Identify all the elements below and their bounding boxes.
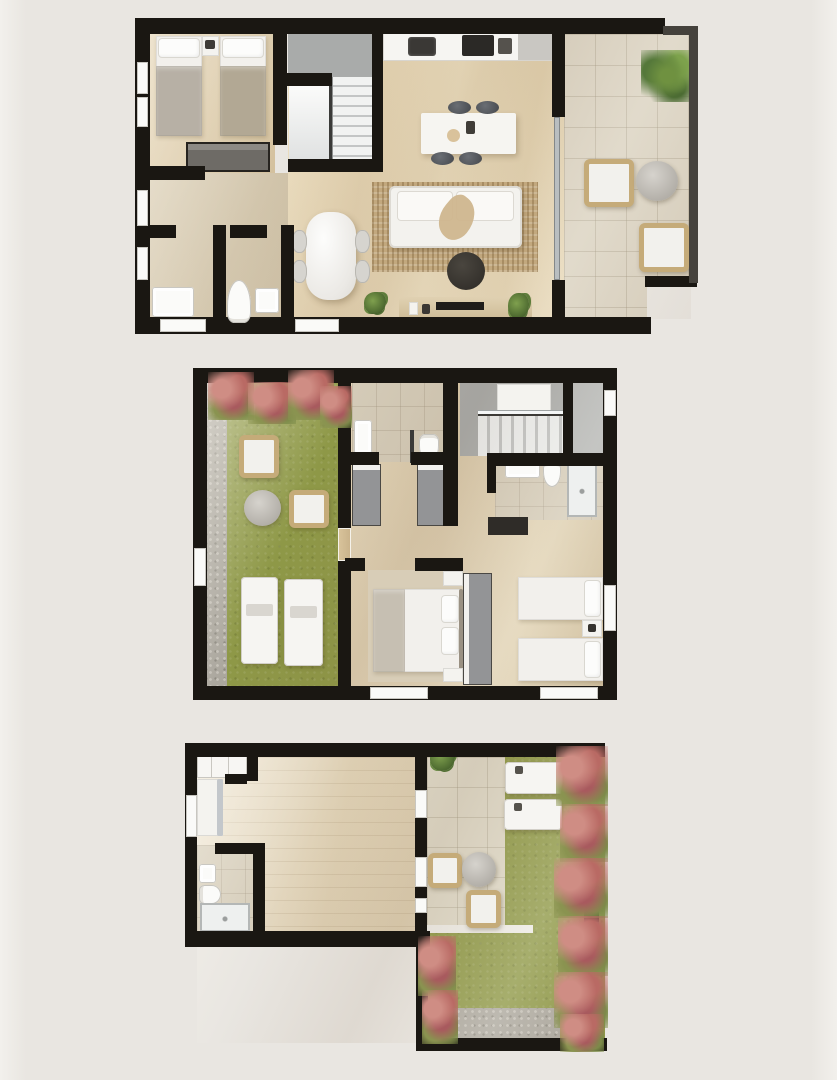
- f2-wall-bath1-right: [443, 368, 458, 526]
- f2-stair-side: [460, 416, 478, 456]
- f1-stair-flight-right: [332, 77, 372, 161]
- f1-bed-2-pillow: [222, 38, 264, 58]
- f2-master-pillow-1: [441, 595, 459, 623]
- f2-master-bench: [443, 668, 463, 682]
- f1-nightstand-decor: [205, 40, 215, 49]
- f3-shrub-4: [558, 916, 608, 976]
- f1-terrace-side-table: [636, 161, 678, 201]
- f2-master-blanket: [373, 589, 405, 672]
- f2-stair-glass-rail: [478, 410, 563, 416]
- f1-window-bottom-1: [160, 319, 206, 332]
- f1-wall-top: [135, 18, 665, 34]
- f2-bath1-sink: [354, 420, 372, 454]
- f3-wall-bath-stub: [215, 843, 253, 854]
- f2-bedroom2-dresser: [488, 517, 528, 535]
- f1-wall-bedroom-stub: [149, 166, 205, 180]
- f2-master-nightstand: [443, 571, 463, 586]
- f1-bed-1-blanket: [156, 66, 202, 136]
- f3-wall-left: [185, 743, 197, 947]
- f1-toilet: [227, 280, 251, 323]
- f3-sun-lounger-2: [504, 799, 562, 830]
- f1-terrace-wall-upper: [552, 33, 565, 117]
- f1-sliding-glass-door: [554, 117, 560, 280]
- f3-bath-sink: [199, 864, 216, 883]
- f2-bed2-pillow-1: [584, 580, 601, 617]
- f2-bed2-nightstand-decor: [588, 624, 596, 632]
- f1-wall-bath-2: [281, 225, 294, 319]
- f2-lounger-towel-1: [246, 604, 273, 616]
- f3-wall-sep-2: [415, 818, 427, 857]
- f1-stair-divider: [329, 86, 332, 161]
- f1-wall-stair-right: [372, 33, 383, 161]
- f1-coffee-table: [447, 252, 485, 290]
- f3-shrub-1: [556, 746, 608, 806]
- f3-lounger-detail-2: [514, 803, 522, 811]
- f1-dining-chair-4: [355, 260, 370, 283]
- f2-terrace-door: [338, 528, 351, 561]
- f1-kitchen-sink: [408, 37, 436, 56]
- f2-stair-shelf: [497, 384, 551, 411]
- f2-window-bottom-2: [540, 687, 598, 699]
- f3-door-2: [415, 857, 427, 887]
- f2-wall-hall-stub-2: [415, 558, 463, 571]
- f1-wall-stair-left: [280, 73, 332, 86]
- f2-window-left: [194, 548, 206, 586]
- f3-bath-toilet: [199, 885, 221, 904]
- f1-wall-bedroom: [273, 33, 287, 145]
- f1-wall-bottom: [135, 317, 651, 334]
- f3-door-3: [415, 898, 427, 913]
- f1-wall-bath-stub-2: [230, 225, 267, 238]
- f3-shower-bed-edge: [217, 779, 223, 836]
- f2-master-wardrobe: [463, 573, 492, 685]
- f2-lounger-towel-2: [290, 606, 317, 618]
- f3-wall-sep-1: [415, 755, 427, 790]
- f1-coffee-machine: [498, 38, 512, 54]
- f1-terrace-wall-lower: [552, 280, 565, 319]
- f2-bath2-shower: [567, 460, 597, 517]
- f1-bar-stool-3: [431, 152, 454, 165]
- f1-vanity: [152, 287, 194, 317]
- f2-window-right-2: [604, 585, 616, 631]
- f3-wall-sep-3: [415, 887, 427, 898]
- f3-shower-tray: [200, 903, 250, 932]
- f2-shrub-4: [320, 386, 352, 428]
- f3-wall-bath-right: [253, 843, 265, 933]
- f2-wall-terrace-lower: [338, 561, 351, 700]
- f1-dining-table: [306, 212, 356, 300]
- f3-wall-block-bottom: [185, 931, 430, 947]
- f2-stair-treads: [478, 416, 563, 456]
- f2-terrace-armchair-1: [239, 435, 279, 478]
- f1-wall-terrace-right: [689, 26, 698, 283]
- f2-master-pillow-2: [441, 627, 459, 655]
- f1-dining-chair-2: [292, 260, 307, 283]
- f2-wall-top: [193, 368, 617, 383]
- f1-console-decor-white: [409, 302, 418, 315]
- f2-wardrobe-2: [417, 464, 446, 526]
- f3-wall-below-closet: [225, 774, 247, 784]
- f1-tv: [436, 302, 484, 310]
- f2-window-bottom-1: [370, 687, 428, 699]
- f3-shrub-2: [560, 804, 608, 862]
- f2-bed2-pillow-2: [584, 641, 601, 678]
- f1-terrace-floor-lower: [564, 276, 647, 319]
- f2-wall-stairs-bottom: [487, 453, 603, 466]
- f2-sun-lounger-2: [284, 579, 323, 666]
- f1-bed-1-pillow: [158, 38, 200, 58]
- f1-bed-2-blanket: [220, 66, 266, 136]
- f1-island-bottle: [466, 121, 475, 134]
- f1-window-left-2: [137, 97, 148, 127]
- f2-wall-bath1-stub-r: [411, 452, 443, 465]
- f1-window-left-4: [137, 247, 148, 280]
- f2-terrace-table: [244, 490, 281, 526]
- f1-bar-stool-1: [448, 101, 471, 114]
- f1-bar-stool-4: [459, 152, 482, 165]
- f1-console-decor-dark: [422, 304, 430, 314]
- f1-cooktop: [462, 35, 494, 56]
- f3-shrub-6: [560, 1014, 604, 1052]
- f1-dining-chair-3: [355, 230, 370, 253]
- f1-wc-sink: [255, 288, 279, 313]
- f1-terrace-palm-plant: [641, 50, 693, 102]
- f1-terrace-armchair-2: [639, 223, 689, 272]
- f3-wall-sep-4: [415, 913, 427, 933]
- f1-terrace-armchair-1: [584, 159, 634, 207]
- f1-stair-landing: [288, 33, 372, 77]
- f2-wall-hall-stub-1: [345, 558, 365, 571]
- floor-plans-canvas: [0, 0, 837, 1080]
- f2-terrace-gravel: [207, 382, 227, 686]
- f2-wall-stairs: [563, 382, 573, 456]
- f1-wall-bath-1: [213, 225, 226, 319]
- f2-wall-bath1-stub-l: [345, 452, 379, 465]
- f3-door-1: [415, 790, 427, 818]
- f2-wall-right: [603, 368, 617, 700]
- f1-dining-chair-1: [292, 230, 307, 253]
- f1-stair-flight-left: [289, 86, 330, 161]
- f1-bar-stool-2: [476, 101, 499, 114]
- f1-window-bottom-2: [295, 319, 339, 332]
- f3-gravel-strip: [448, 1008, 560, 1042]
- f2-sun-lounger-1: [241, 577, 278, 664]
- f3-shrub-7: [418, 936, 456, 996]
- f2-terrace-armchair-2: [289, 490, 329, 528]
- f2-landing-right: [572, 382, 603, 455]
- f2-wall-stairs-stub: [487, 453, 496, 493]
- f3-shrub-8: [422, 990, 458, 1044]
- f3-shrub-3: [554, 858, 608, 918]
- f3-patio-table: [462, 852, 496, 887]
- f1-window-left-1: [137, 62, 148, 94]
- f1-island-bowl: [447, 129, 460, 142]
- f3-sun-lounger-1: [505, 762, 563, 794]
- f3-lounger-detail-1: [515, 766, 523, 774]
- f2-wall-left: [193, 368, 207, 700]
- f3-window-left: [186, 795, 197, 837]
- f3-patio-armchair-2: [466, 890, 501, 928]
- f1-kitchen-cabinet: [518, 34, 555, 60]
- f2-window-right-1: [604, 390, 616, 416]
- f1-wall-bath-stub-1: [149, 225, 176, 238]
- f1-wall-stair-bottom: [288, 159, 383, 172]
- f2-wardrobe-1: [352, 464, 381, 526]
- f3-patio-armchair-1: [428, 853, 462, 888]
- f1-window-left-3: [137, 190, 148, 226]
- f3-wall-closet: [247, 755, 258, 781]
